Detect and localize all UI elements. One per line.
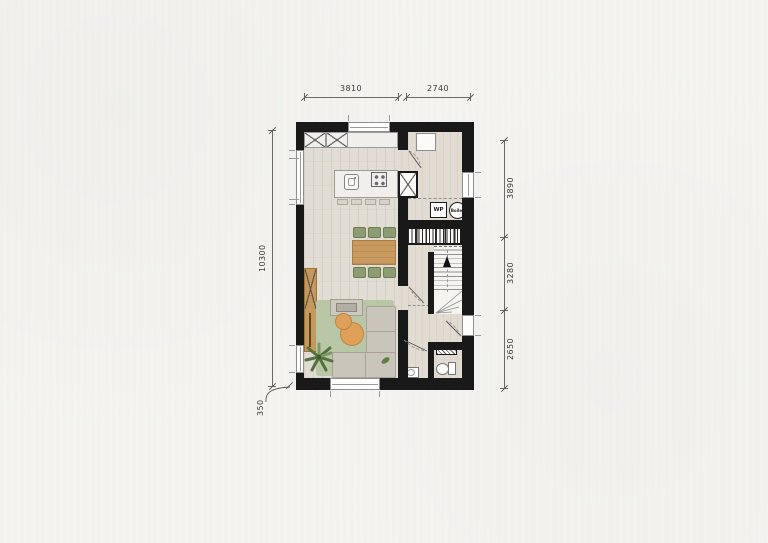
- stairs-open-edge: [434, 246, 462, 247]
- tech-room-dashed-line: [408, 198, 462, 199]
- shaft-box: [398, 171, 418, 198]
- sill-tick: [475, 172, 481, 173]
- pouf: [335, 313, 352, 330]
- dining-table: [352, 240, 396, 265]
- dim-bottom-left-label: 350: [256, 396, 265, 420]
- wall-segment: [430, 342, 462, 350]
- ventilation-unit: [416, 133, 436, 151]
- dimension-line: [272, 130, 273, 386]
- wall-segment: [462, 122, 474, 172]
- wall-segment: [398, 198, 408, 286]
- dining-chair: [353, 267, 366, 278]
- dining-chair: [383, 227, 396, 238]
- bar-stool: [379, 199, 390, 205]
- sill-tick: [289, 204, 295, 205]
- sill-tick: [289, 150, 295, 151]
- wall-segment: [462, 198, 474, 315]
- dim-right-3-label: 2650: [506, 324, 515, 374]
- window-right: [462, 172, 474, 198]
- sill-tick: [379, 391, 380, 397]
- wall-segment: [380, 378, 474, 390]
- window-bottom: [330, 378, 380, 390]
- stairs-treads: [434, 246, 462, 290]
- sill-tick: [289, 345, 295, 346]
- dim-top-right-label: 2740: [413, 84, 463, 93]
- floor-plan-canvas: WP Boiler: [0, 0, 768, 543]
- sill-tick: [389, 115, 390, 121]
- dining-chair: [368, 267, 381, 278]
- wall-segment: [398, 220, 462, 228]
- sill-tick: [289, 372, 295, 373]
- toilet-cistern-icon: [448, 362, 456, 375]
- sill-tick: [348, 115, 349, 121]
- dim-right-2-label: 3280: [506, 248, 515, 298]
- dimension-line: [304, 97, 398, 98]
- sink-icon: [344, 174, 359, 190]
- cooktop-icon: [371, 172, 387, 187]
- front-door-opening: [462, 315, 474, 336]
- wardrobe-hatch: [406, 227, 462, 245]
- dining-chair: [383, 267, 396, 278]
- bar-stool: [351, 199, 362, 205]
- wall-segment: [428, 252, 434, 314]
- dim-top-left-label: 3810: [326, 84, 376, 93]
- dimension-slash: [286, 382, 293, 389]
- dimension-line: [504, 140, 505, 388]
- sill-tick: [330, 391, 331, 397]
- bar-stool: [365, 199, 376, 205]
- sill-tick: [289, 158, 299, 159]
- kitchen-tall-cabinet: [304, 132, 326, 148]
- window-top: [348, 122, 390, 132]
- dimension-line: [406, 97, 470, 98]
- stairs-direction-arrow-icon: [443, 256, 451, 267]
- bar-stool: [337, 199, 348, 205]
- wall-segment: [296, 205, 304, 345]
- wall-segment: [398, 132, 408, 150]
- dining-chair: [368, 227, 381, 238]
- dim-right-1-label: 3890: [506, 163, 515, 213]
- wall-segment: [398, 310, 408, 378]
- stairs-winders: [434, 290, 462, 314]
- wall-segment: [462, 336, 474, 390]
- window-left-lower: [296, 345, 304, 373]
- toilet-bowl-icon: [436, 363, 449, 375]
- sill-tick: [475, 315, 481, 316]
- sill-tick: [289, 199, 299, 200]
- wall-segment: [296, 373, 304, 390]
- wall-segment: [428, 342, 434, 378]
- wall-segment: [296, 122, 304, 150]
- heat-pump-label: WP: [430, 202, 447, 218]
- kitchen-tall-cabinet: [326, 132, 348, 148]
- sill-tick: [475, 197, 481, 198]
- dim-left-total-label: 10300: [258, 233, 267, 283]
- dining-chair: [353, 227, 366, 238]
- sill-tick: [475, 335, 481, 336]
